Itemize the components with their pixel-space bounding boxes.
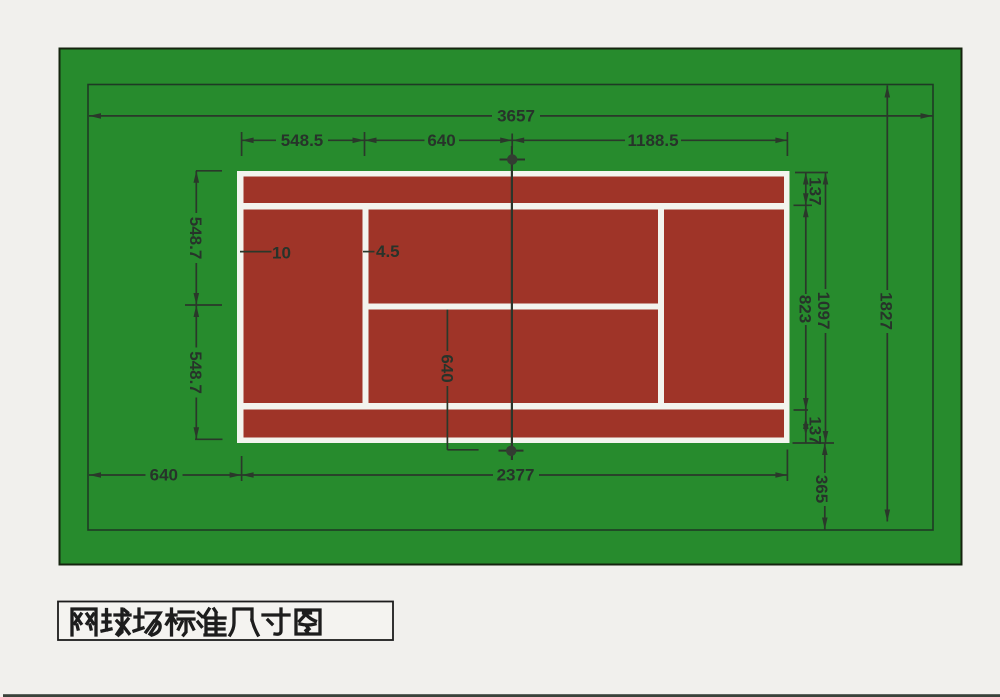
svg-text:365: 365 <box>812 475 831 503</box>
svg-text:640: 640 <box>427 131 455 150</box>
svg-text:137: 137 <box>806 416 825 444</box>
svg-text:548.7: 548.7 <box>186 217 205 260</box>
svg-text:1827: 1827 <box>877 292 896 330</box>
svg-text:548.5: 548.5 <box>281 131 324 150</box>
svg-text:823: 823 <box>796 295 815 323</box>
svg-text:1188.5: 1188.5 <box>627 131 678 150</box>
svg-text:10: 10 <box>272 243 291 262</box>
svg-text:548.7: 548.7 <box>186 351 205 394</box>
svg-text:640: 640 <box>150 466 178 485</box>
svg-text:3657: 3657 <box>497 106 535 125</box>
svg-text:2377: 2377 <box>497 466 535 485</box>
svg-text:137: 137 <box>805 177 824 205</box>
svg-text:640: 640 <box>437 354 456 382</box>
svg-text:4.5: 4.5 <box>376 242 400 261</box>
svg-text:1097: 1097 <box>814 292 833 330</box>
